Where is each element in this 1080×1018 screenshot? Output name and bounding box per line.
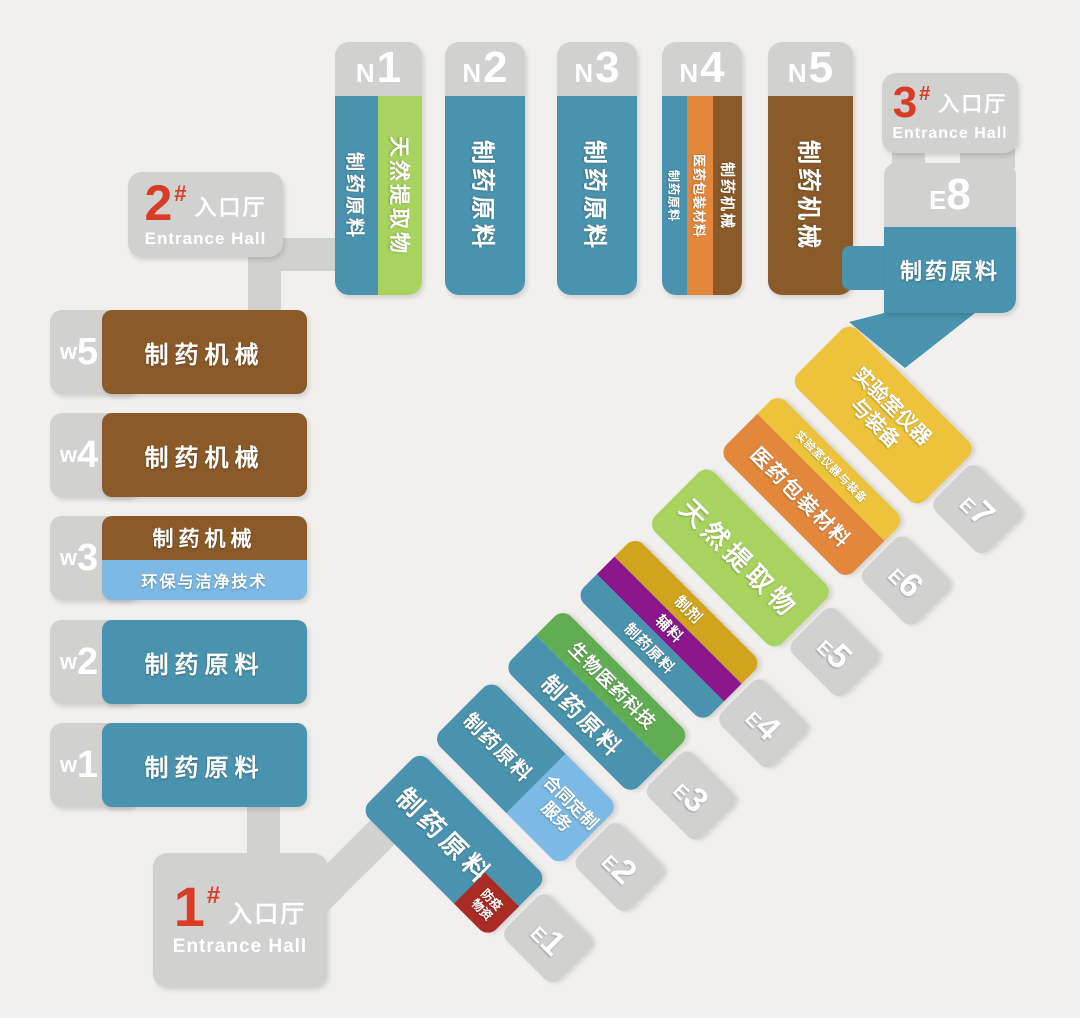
hall-n3: N3 制药原料 [557, 42, 637, 295]
entrance-2-hash: # [174, 181, 186, 207]
hall-n4: N4 制药原料 医药包装材料 制药机械 [662, 42, 742, 295]
strip-pharma-machinery: 制药机械 [102, 413, 307, 497]
entrance-hall-3-title: 3 # 入口厅 [893, 83, 1008, 123]
hall-w3: 制药机械 环保与洁净技术 [102, 516, 307, 600]
hall-n1: N1 制药原料 天然提取物 [335, 42, 422, 295]
strip-natural-extracts: 天然提取物 [378, 96, 422, 295]
hall-n5-label: N5 [768, 42, 853, 96]
strip-eco-clean-tech: 环保与洁净技术 [102, 560, 307, 600]
hall-e8: 制药原料 [884, 227, 1016, 313]
entrance-2-number: 2 [144, 181, 172, 226]
hall-w1: 制药原料 [102, 723, 307, 807]
connector-entrance2-n1 [278, 238, 338, 271]
strip-pharma-raw-materials: 制药原料 [662, 96, 687, 295]
entrance-hall-2-title: 2 # 入口厅 [144, 181, 266, 226]
hall-n3-label: N3 [557, 42, 637, 96]
entrance-2-en-label: Entrance Hall [145, 229, 267, 249]
entrance-hall-2: 2 # 入口厅 Entrance Hall [128, 172, 283, 257]
strip-pharma-raw-materials: 制药原料 [102, 723, 307, 807]
hall-e8-label: E8 [884, 163, 1016, 227]
strip-pharma-raw-materials: 制药原料 [445, 96, 525, 295]
strip-pharma-raw-materials: 制药原料 [102, 620, 307, 704]
hall-n2-label: N2 [445, 42, 525, 96]
entrance-3-number: 3 [893, 83, 917, 123]
hall-n1-label: N1 [335, 42, 422, 96]
entrance-2-cn-label: 入口厅 [195, 190, 267, 222]
entrance-hall-1-title: 1 # 入口厅 [174, 882, 307, 932]
hall-n5: N5 制药机械 [768, 42, 853, 295]
connector-entrance1-w1 [247, 802, 280, 858]
strip-pharma-machinery: 制药机械 [102, 310, 307, 394]
entrance-1-cn-label: 入口厅 [228, 894, 306, 929]
strip-pharma-machinery: 制药机械 [768, 96, 853, 295]
entrance-1-hash: # [207, 882, 220, 910]
strip-pharma-raw-materials: 制药原料 [884, 227, 1016, 313]
exhibition-floor-plan: 2 # 入口厅 Entrance Hall 3 # 入口厅 Entrance H… [0, 0, 1080, 1018]
hall-n2: N2 制药原料 [445, 42, 525, 295]
connector-entrance2-w5 [248, 252, 281, 314]
entrance-3-cn-label: 入口厅 [938, 88, 1007, 118]
strip-pharma-machinery: 制药机械 [102, 516, 307, 560]
strip-pharma-raw-materials: 制药原料 [557, 96, 637, 295]
entrance-1-number: 1 [174, 882, 205, 932]
strip-pharma-machinery: 制药机械 [713, 96, 742, 295]
entrance-hall-1: 1 # 入口厅 Entrance Hall [153, 853, 327, 987]
strip-pharma-packaging-materials: 医药包装材料 [687, 96, 713, 295]
hall-w4: 制药机械 [102, 413, 307, 497]
hall-w2: 制药原料 [102, 620, 307, 704]
hall-w5: 制药机械 [102, 310, 307, 394]
entrance-3-hash: # [919, 83, 930, 106]
hall-e8-left-arm [842, 246, 888, 290]
entrance-hall-3: 3 # 入口厅 Entrance Hall [882, 73, 1018, 153]
hall-n4-label: N4 [662, 42, 742, 96]
entrance-1-en-label: Entrance Hall [173, 936, 307, 958]
entrance-3-en-label: Entrance Hall [892, 125, 1007, 143]
strip-pharma-raw-materials: 制药原料 [335, 96, 378, 295]
